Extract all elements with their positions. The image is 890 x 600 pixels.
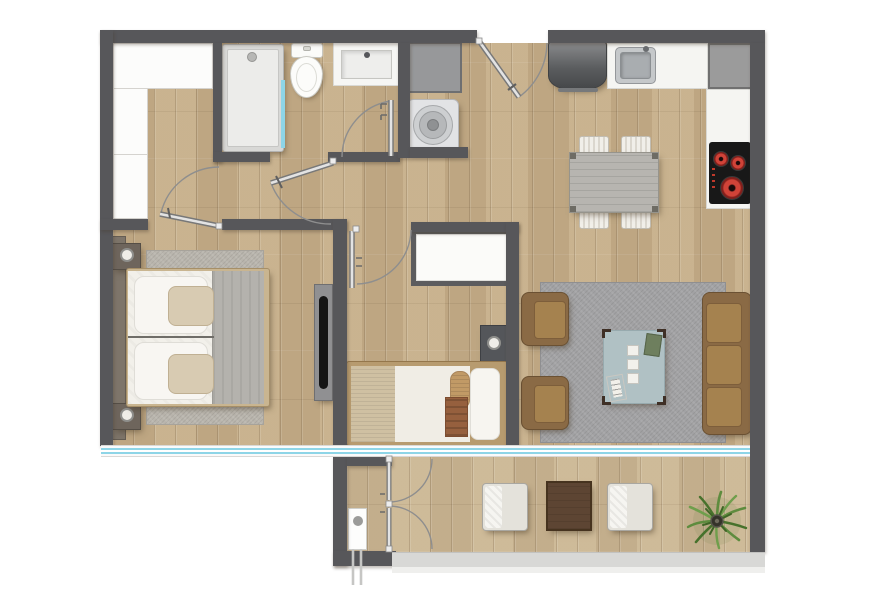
refrigerator-base bbox=[558, 88, 598, 92]
wall-bathroom-left bbox=[213, 43, 222, 162]
shower-glass-panel bbox=[281, 80, 285, 148]
bed1-center-seam bbox=[128, 336, 214, 338]
tv-screen bbox=[319, 296, 328, 389]
bedroom2-closet-inner bbox=[416, 234, 508, 281]
coffee-table-corner bbox=[602, 329, 611, 338]
wall-storage-bottom bbox=[333, 551, 396, 566]
lounge-chair-right bbox=[607, 483, 653, 531]
coaster bbox=[627, 359, 639, 370]
lounge-backrest bbox=[485, 486, 502, 528]
entry-closet-low bbox=[113, 154, 148, 219]
wall-top-right bbox=[548, 30, 765, 43]
burner-small-left bbox=[713, 151, 729, 167]
kitchen-faucet bbox=[643, 46, 649, 52]
wall-laundry-bottom bbox=[410, 147, 468, 158]
balcony-table bbox=[546, 481, 592, 531]
balcony-parapet bbox=[392, 552, 765, 567]
sofa-cushion bbox=[706, 387, 742, 427]
lounge-backrest bbox=[610, 486, 627, 528]
armchair-top bbox=[521, 292, 569, 346]
bed1-accent-pillow-top bbox=[168, 286, 214, 326]
armchair-bottom bbox=[521, 376, 569, 430]
wall-bathroom-bottom-right bbox=[328, 152, 400, 162]
coffee-table bbox=[603, 330, 665, 404]
entry-closet-top bbox=[113, 43, 213, 89]
sofa-cushion bbox=[706, 303, 742, 343]
refrigerator bbox=[548, 41, 607, 90]
magazine-white bbox=[606, 374, 627, 403]
bed2-throw-brown bbox=[445, 397, 468, 437]
wall-storage-left bbox=[333, 457, 347, 566]
floor-plan-canvas bbox=[0, 0, 890, 600]
cooktop bbox=[709, 142, 751, 204]
coaster bbox=[627, 345, 639, 356]
wall-bedroom2-right bbox=[506, 222, 519, 448]
washer-agitator bbox=[427, 119, 439, 131]
entry-closet-mid bbox=[113, 88, 148, 155]
bed1-blanket-gray bbox=[212, 271, 264, 404]
sofa bbox=[702, 292, 752, 435]
balcony-parapet-edge bbox=[392, 567, 765, 573]
coaster bbox=[627, 373, 639, 384]
utility-cabinet bbox=[408, 42, 462, 93]
window-band bbox=[101, 445, 750, 457]
wall-bedroom2-top bbox=[411, 222, 519, 232]
table-leg bbox=[570, 206, 576, 212]
burner-large bbox=[720, 176, 744, 200]
bed2-blanket-beige bbox=[351, 366, 395, 442]
magazine-green bbox=[644, 333, 663, 357]
utility-connection-valve bbox=[353, 516, 363, 526]
lounge-chair-left bbox=[482, 483, 528, 531]
bed1-lamp-top bbox=[120, 248, 134, 262]
dining-table bbox=[569, 152, 659, 213]
armchair-cushion bbox=[534, 301, 566, 339]
wall-left bbox=[100, 30, 113, 446]
sofa-cushion bbox=[706, 345, 742, 385]
toilet-flush-button bbox=[303, 46, 311, 51]
utility-connection-box bbox=[348, 508, 367, 550]
kitchen-sink-basin bbox=[620, 52, 651, 79]
corner-cabinet bbox=[708, 43, 752, 89]
wall-top-left bbox=[100, 30, 477, 43]
table-leg bbox=[652, 206, 658, 212]
table-leg bbox=[570, 153, 576, 159]
wall-bathroom-bottom-left bbox=[213, 152, 270, 162]
bed2-pillow bbox=[470, 368, 500, 440]
cooktop-controls bbox=[712, 166, 715, 188]
vanity-faucet bbox=[364, 52, 370, 58]
burner-small-right bbox=[730, 155, 746, 171]
wall-bedroom1-top-right bbox=[222, 219, 347, 230]
wall-divider bbox=[333, 219, 347, 447]
shower-drain bbox=[247, 52, 257, 62]
armchair-cushion bbox=[534, 385, 566, 423]
shower-floor bbox=[227, 49, 279, 147]
wall-bedroom1-top-left bbox=[100, 219, 148, 230]
bed1-accent-pillow-bottom bbox=[168, 354, 214, 394]
coffee-table-corner bbox=[657, 396, 666, 405]
wall-right bbox=[750, 43, 765, 552]
wall-storage-top bbox=[347, 456, 392, 466]
bedroom2-lamp bbox=[487, 336, 501, 350]
wall-laundry-left bbox=[398, 43, 410, 158]
table-leg bbox=[652, 153, 658, 159]
toilet-seat-line bbox=[296, 63, 317, 92]
bed1-lamp-bottom bbox=[120, 408, 134, 422]
